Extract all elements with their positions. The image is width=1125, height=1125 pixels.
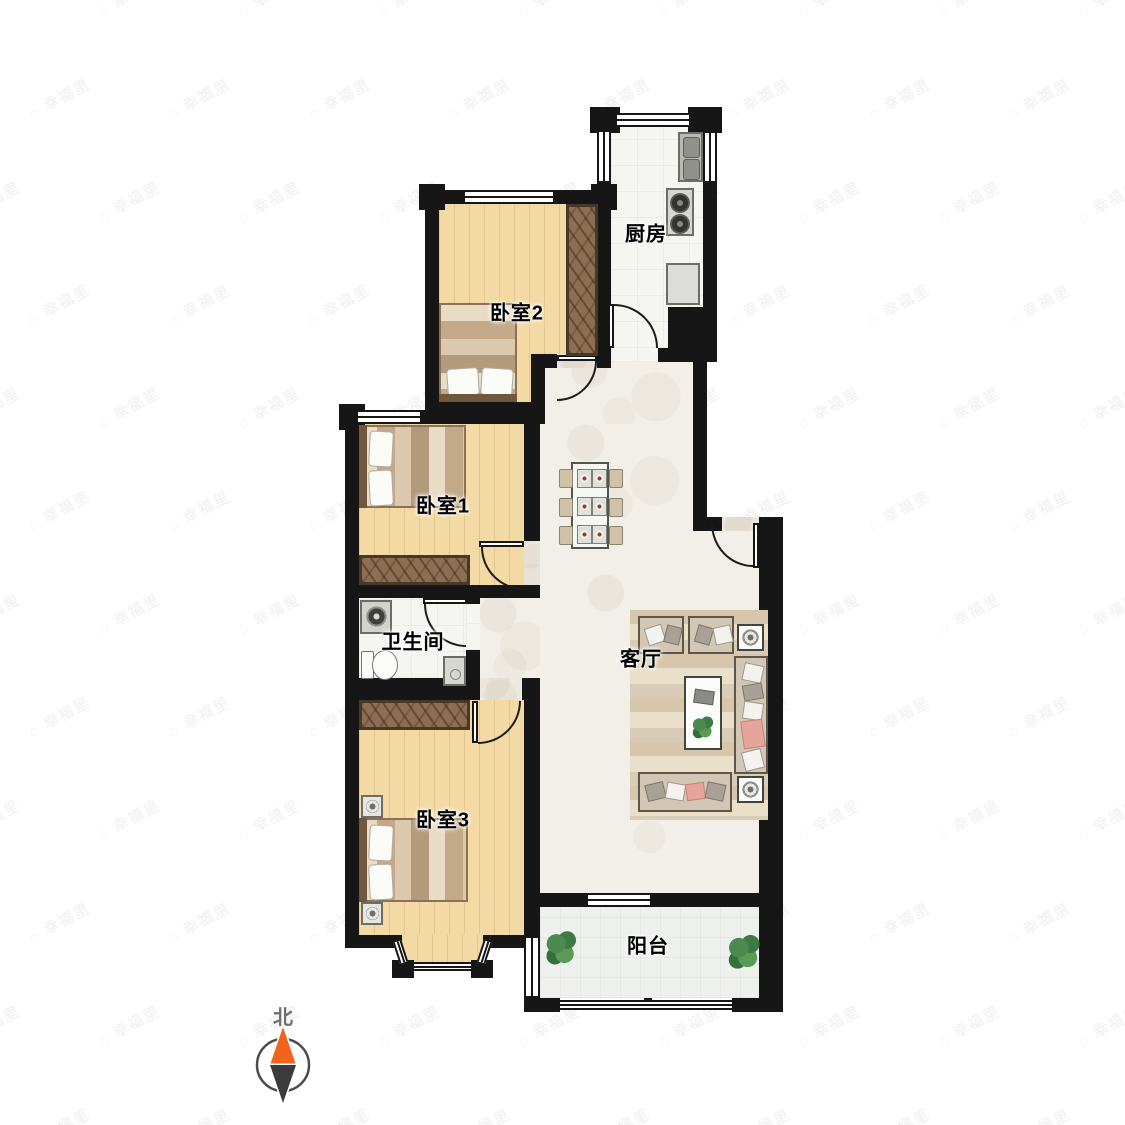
sofa-throw xyxy=(740,719,766,750)
watermark-item: ⌂ 幸福里 xyxy=(934,588,1004,639)
bathroom-doorway xyxy=(466,604,480,650)
table-lamp xyxy=(742,781,759,798)
place-setting xyxy=(577,497,592,516)
watermark-item: ⌂ 幸福里 xyxy=(94,794,164,845)
watermark-item: ⌂ 幸福里 xyxy=(24,1103,94,1125)
bedroom3-nightstand-top xyxy=(361,795,383,818)
hallway-floor xyxy=(480,598,540,678)
kitchen-bottom-jamb xyxy=(658,348,668,362)
bedroom2-wardrobe xyxy=(566,204,598,356)
watermark-item: ⌂ 幸福里 xyxy=(374,0,444,21)
kitchen-bottom-block xyxy=(668,307,717,362)
stove-burner-bottom xyxy=(670,214,690,234)
bedroom3-pillow-bottom xyxy=(368,863,394,900)
sofa-pillow xyxy=(665,781,687,801)
bedroom2-doorjamb-right xyxy=(597,354,611,368)
watermark-item: ⌂ 幸福里 xyxy=(374,1000,444,1051)
watermark-item: ⌂ 幸福里 xyxy=(0,176,24,227)
nightstand-lamp xyxy=(366,907,379,920)
bedroom3-wardrobe xyxy=(359,700,470,730)
bedroom3-pillow-top xyxy=(368,824,394,861)
watermark-item: ⌂ 幸福里 xyxy=(514,0,584,21)
balcony-plant-right xyxy=(728,934,762,970)
watermark-item: ⌂ 幸福里 xyxy=(24,73,94,124)
floor-plan: ⌂ 幸福里⌂ 幸福里⌂ 幸福里⌂ 幸福里⌂ 幸福里⌂ 幸福里⌂ 幸福里⌂ 幸福里… xyxy=(0,0,1125,1125)
entry-door-leaf xyxy=(753,523,759,568)
coffee-table xyxy=(684,676,722,750)
bedroom2-headboard xyxy=(439,394,517,402)
bedroom1-pillow-top xyxy=(368,430,394,467)
shower-drain xyxy=(450,669,461,680)
kitchen-label: 厨房 xyxy=(625,218,667,247)
watermark-item: ⌂ 幸福里 xyxy=(654,0,724,21)
sofa-bottom xyxy=(638,772,732,812)
watermark-item: ⌂ 幸福里 xyxy=(584,1103,654,1125)
armchair-pillow xyxy=(694,624,714,646)
watermark-item: ⌂ 幸福里 xyxy=(94,0,164,21)
watermark-item: ⌂ 幸福里 xyxy=(234,0,304,21)
watermark-item: ⌂ 幸福里 xyxy=(24,691,94,742)
watermark-item: ⌂ 幸福里 xyxy=(1004,1103,1074,1125)
compass-needle-south xyxy=(270,1065,296,1103)
bedroom1-wardrobe xyxy=(359,555,470,585)
dining-chair xyxy=(609,469,623,488)
kitchen-stove xyxy=(666,188,694,236)
watermark-item: ⌂ 幸福里 xyxy=(864,73,934,124)
bedroom2-window xyxy=(465,190,553,204)
watermark-item: ⌂ 幸福里 xyxy=(444,73,514,124)
side-table-bottom xyxy=(737,776,764,803)
balcony-bottom-corner-left xyxy=(524,998,560,1012)
dining-table xyxy=(571,462,609,549)
table-lamp xyxy=(742,629,759,646)
corner-kitchen-tl xyxy=(590,107,620,133)
watermark-item: ⌂ 幸福里 xyxy=(444,1103,514,1125)
watermark-item: ⌂ 幸福里 xyxy=(934,176,1004,227)
watermark-item: ⌂ 幸福里 xyxy=(164,897,234,948)
kitchen-doorway xyxy=(611,348,658,362)
bedroom1-doorway xyxy=(524,541,540,587)
kitchen-top-window xyxy=(617,113,689,127)
watermark-item: ⌂ 幸福里 xyxy=(1004,485,1074,536)
corner-kitchen-tr xyxy=(688,107,722,133)
watermark-item: ⌂ 幸福里 xyxy=(1074,382,1125,433)
watermark-item: ⌂ 幸福里 xyxy=(1004,279,1074,330)
sofa-pillow xyxy=(742,682,764,701)
place-setting xyxy=(577,469,592,488)
place-setting xyxy=(592,469,607,488)
shower-tray xyxy=(443,656,466,686)
dining-chair xyxy=(559,498,573,517)
sink-basin-top xyxy=(683,137,700,158)
watermark-item: ⌂ 幸福里 xyxy=(794,1000,864,1051)
place-setting xyxy=(592,497,607,516)
bedroom3-headboard xyxy=(359,818,367,902)
balcony-left-window xyxy=(524,938,540,996)
bedroom3-doorway xyxy=(478,678,522,700)
balcony-label: 阳台 xyxy=(627,930,669,959)
watermark-item: ⌂ 幸福里 xyxy=(1074,1000,1125,1051)
watermark-item: ⌂ 幸福里 xyxy=(234,382,304,433)
watermark-item: ⌂ 幸福里 xyxy=(304,279,374,330)
armchair-pillow xyxy=(663,624,683,645)
stove-burner-top xyxy=(670,193,690,213)
bedroom3-bay-floor xyxy=(402,935,483,963)
watermark-item: ⌂ 幸福里 xyxy=(724,73,794,124)
bedroom1-right-wall xyxy=(524,410,540,541)
watermark-item: ⌂ 幸福里 xyxy=(864,279,934,330)
side-table-top xyxy=(737,624,764,651)
watermark-item: ⌂ 幸福里 xyxy=(1004,691,1074,742)
bedroom2-left-wall xyxy=(425,190,439,416)
sofa-pillow xyxy=(704,781,726,802)
watermark-item: ⌂ 幸福里 xyxy=(934,1000,1004,1051)
bedroom1-left-wall xyxy=(345,410,359,598)
watermark-item: ⌂ 幸福里 xyxy=(1004,897,1074,948)
compass: 北 xyxy=(246,998,320,1106)
compass-needle-north xyxy=(270,1027,296,1065)
toilet-bowl xyxy=(372,650,398,680)
watermark-item: ⌂ 幸福里 xyxy=(94,1000,164,1051)
bathroom-label: 卫生间 xyxy=(382,626,445,655)
watermark-item: ⌂ 幸福里 xyxy=(24,279,94,330)
sofa-pillow-pink xyxy=(685,782,706,801)
watermark-item: ⌂ 幸福里 xyxy=(24,897,94,948)
bedroom3-left-wall xyxy=(345,678,359,948)
balcony-plant-left xyxy=(546,930,578,966)
dining-chair xyxy=(559,469,573,488)
sofa-pillow xyxy=(741,748,765,772)
place-setting xyxy=(577,525,592,544)
watermark-item: ⌂ 幸福里 xyxy=(1074,794,1125,845)
watermark-item: ⌂ 幸福里 xyxy=(724,279,794,330)
watermark-item: ⌂ 幸福里 xyxy=(234,794,304,845)
watermark-item: ⌂ 幸福里 xyxy=(794,0,864,21)
place-setting xyxy=(592,525,607,544)
dining-chair xyxy=(609,498,623,517)
watermark-item: ⌂ 幸福里 xyxy=(1074,176,1125,227)
watermark-item: ⌂ 幸福里 xyxy=(864,1103,934,1125)
watermark-item: ⌂ 幸福里 xyxy=(864,691,934,742)
sofa-pillow xyxy=(741,662,764,684)
bedroom1-window xyxy=(358,410,420,424)
watermark-item: ⌂ 幸福里 xyxy=(304,1103,374,1125)
watermark-item: ⌂ 幸福里 xyxy=(934,0,1004,21)
balcony-bottom-corner-right xyxy=(732,998,783,1012)
balcony-divider-wall xyxy=(524,893,783,907)
watermark-item: ⌂ 幸福里 xyxy=(94,382,164,433)
watermark-item: ⌂ 幸福里 xyxy=(794,794,864,845)
balcony-sliding-door xyxy=(588,893,650,907)
bedroom2-pillow-left xyxy=(446,367,480,397)
watermark-item: ⌂ 幸福里 xyxy=(864,897,934,948)
watermark-item: ⌂ 幸福里 xyxy=(24,485,94,536)
balcony-bottom-window xyxy=(560,1000,732,1010)
watermark-item: ⌂ 幸福里 xyxy=(234,176,304,227)
sink-basin-bottom xyxy=(683,159,700,180)
watermark-item: ⌂ 幸福里 xyxy=(164,485,234,536)
watermark-item: ⌂ 幸福里 xyxy=(0,1000,24,1051)
watermark-item: ⌂ 幸福里 xyxy=(1004,73,1074,124)
bedroom2-label: 卧室2 xyxy=(490,297,544,326)
watermark-item: ⌂ 幸福里 xyxy=(1074,0,1125,21)
watermark-item: ⌂ 幸福里 xyxy=(304,73,374,124)
dining-chair xyxy=(559,526,573,545)
watermark-item: ⌂ 幸福里 xyxy=(234,588,304,639)
watermark-item: ⌂ 幸福里 xyxy=(0,794,24,845)
bathroom-right-jamb-top xyxy=(466,598,480,604)
bedroom1-headboard xyxy=(359,425,367,508)
kitchen-sink xyxy=(678,132,703,182)
sofa-pillow xyxy=(644,781,667,802)
bedroom1-label: 卧室1 xyxy=(416,490,470,519)
watermark-item: ⌂ 幸福里 xyxy=(794,588,864,639)
watermark-item: ⌂ 幸福里 xyxy=(794,382,864,433)
watermark-item: ⌂ 幸福里 xyxy=(164,279,234,330)
watermark-item: ⌂ 幸福里 xyxy=(164,73,234,124)
bedroom3-right-wall xyxy=(524,678,540,907)
kitchen-fridge xyxy=(666,263,700,305)
watermark-item: ⌂ 幸福里 xyxy=(94,176,164,227)
watermark-item: ⌂ 幸福里 xyxy=(0,588,24,639)
watermark-item: ⌂ 幸福里 xyxy=(934,382,1004,433)
washer-drum xyxy=(366,606,387,627)
watermark-item: ⌂ 幸福里 xyxy=(794,176,864,227)
watermark-item: ⌂ 幸福里 xyxy=(0,0,24,21)
bedroom2-doorjamb-left xyxy=(545,354,557,368)
book xyxy=(693,689,715,706)
sofa-right xyxy=(734,656,768,774)
watermark-item: ⌂ 幸福里 xyxy=(164,691,234,742)
kitchen-left-window xyxy=(597,132,611,181)
bedroom3-nightstand-bottom xyxy=(361,902,383,925)
bedroom3-label: 卧室3 xyxy=(416,804,470,833)
bay-bottom-window xyxy=(414,962,471,971)
watermark-item: ⌂ 幸福里 xyxy=(0,382,24,433)
watermark-item: ⌂ 幸福里 xyxy=(94,588,164,639)
watermark-item: ⌂ 幸福里 xyxy=(864,485,934,536)
table-flowers xyxy=(692,716,715,739)
armchair-right xyxy=(688,616,734,654)
bedroom1-pillow-bottom xyxy=(368,469,394,506)
watermark-item: ⌂ 幸福里 xyxy=(1074,588,1125,639)
armchair-pillow xyxy=(712,624,733,645)
watermark-item: ⌂ 幸福里 xyxy=(724,1103,794,1125)
watermark-item: ⌂ 幸福里 xyxy=(934,794,1004,845)
dining-chair xyxy=(609,526,623,545)
watermark-item: ⌂ 幸福里 xyxy=(164,1103,234,1125)
living-label: 客厅 xyxy=(620,643,662,672)
kitchen-right-window xyxy=(703,133,717,181)
nightstand-lamp xyxy=(366,800,379,813)
bedroom2-pillow-right xyxy=(480,367,514,397)
living-right-wall-upper xyxy=(693,355,707,521)
